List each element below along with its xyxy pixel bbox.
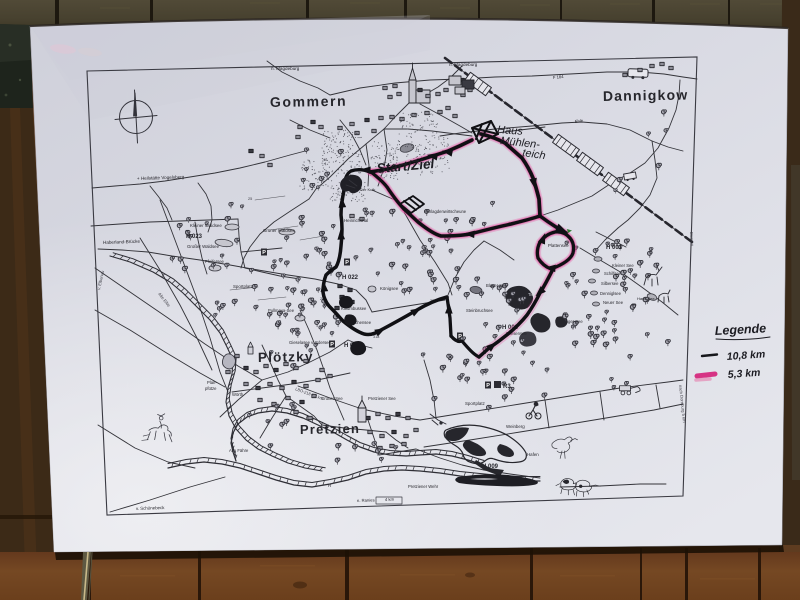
svg-text:Heinrichshal: Heinrichshal	[344, 218, 368, 223]
svg-text:n. Magdeburg: n. Magdeburg	[449, 62, 478, 67]
svg-text:Plan-: Plan-	[207, 380, 217, 385]
svg-text:Plötzky: Plötzky	[258, 349, 314, 365]
svg-text:v. Schönebeck: v. Schönebeck	[136, 505, 165, 511]
svg-text:Haus See: Haus See	[637, 296, 655, 301]
svg-text:Grüner See: Grüner See	[321, 396, 343, 401]
svg-text:Kleiner Waldsee: Kleiner Waldsee	[190, 223, 222, 228]
svg-text:Plattensee: Plattensee	[548, 243, 569, 248]
svg-text:Der Kulk: Der Kulk	[360, 187, 375, 192]
svg-text:Sportplatz: Sportplatz	[233, 284, 253, 289]
svg-text:H 009: H 009	[482, 464, 499, 470]
svg-text:5,3 km: 5,3 km	[727, 367, 760, 381]
svg-text:Legende: Legende	[714, 321, 766, 338]
svg-text:Dannigkow: Dannigkow	[603, 87, 689, 104]
svg-text:Pretziener See: Pretziener See	[368, 396, 396, 401]
svg-text:4 km: 4 km	[385, 497, 395, 502]
svg-text:Großer Waldsee: Großer Waldsee	[187, 244, 220, 249]
svg-text:Hafen: Hafen	[527, 452, 539, 457]
svg-text:Pullmaya-See: Pullmaya-See	[268, 308, 295, 313]
svg-text:Langer See: Langer See	[561, 319, 583, 324]
svg-text:Alte Fähre: Alte Fähre	[229, 448, 249, 453]
svg-text:n. Ranies: n. Ranies	[357, 497, 375, 503]
svg-text:Schlagdenwirtscheune: Schlagdenwirtscheune	[424, 209, 467, 214]
svg-text:R3: R3	[503, 384, 511, 390]
svg-text:pfütze: pfütze	[205, 386, 217, 391]
svg-text:P: P	[345, 260, 349, 266]
svg-text:Grüner Waldsee: Grüner Waldsee	[263, 228, 295, 233]
svg-text:Kleiner See: Kleiner See	[612, 263, 634, 268]
svg-text:Pfeifersee: Pfeifersee	[205, 259, 225, 264]
svg-text:H 023: H 023	[186, 234, 203, 240]
svg-text:H 022: H 022	[342, 275, 359, 281]
svg-text:Gieselasee v. Edersee: Gieselasee v. Edersee	[289, 340, 331, 345]
svg-text:Silbersee: Silbersee	[601, 281, 619, 286]
svg-text:P: P	[486, 383, 490, 389]
svg-text:Weinberg: Weinberg	[506, 424, 525, 429]
svg-text:Pretziener Wehr: Pretziener Wehr	[408, 484, 439, 489]
svg-text:Wörth: Wörth	[232, 392, 244, 397]
svg-text:n. Magdeburg: n. Magdeburg	[271, 66, 300, 71]
svg-text:Blauer See: Blauer See	[486, 283, 507, 288]
svg-text:31a: 31a	[373, 335, 380, 339]
svg-text:Sportplatz: Sportplatz	[465, 401, 485, 406]
svg-text:H 001: H 001	[606, 245, 623, 251]
svg-text:Schilfsee: Schilfsee	[604, 271, 622, 276]
svg-text:Dessau: Dessau	[689, 232, 695, 247]
svg-text:Neuer See: Neuer See	[603, 300, 624, 305]
svg-text:Pretzien: Pretzien	[300, 421, 360, 437]
svg-text:25: 25	[248, 197, 252, 201]
svg-text:Steinbruchsee: Steinbruchsee	[466, 308, 493, 313]
svg-text:Königsee: Königsee	[380, 286, 399, 291]
svg-text:Denniglsee: Denniglsee	[600, 291, 622, 296]
svg-text:Gommern: Gommern	[270, 93, 348, 110]
svg-text:P: P	[262, 250, 266, 256]
